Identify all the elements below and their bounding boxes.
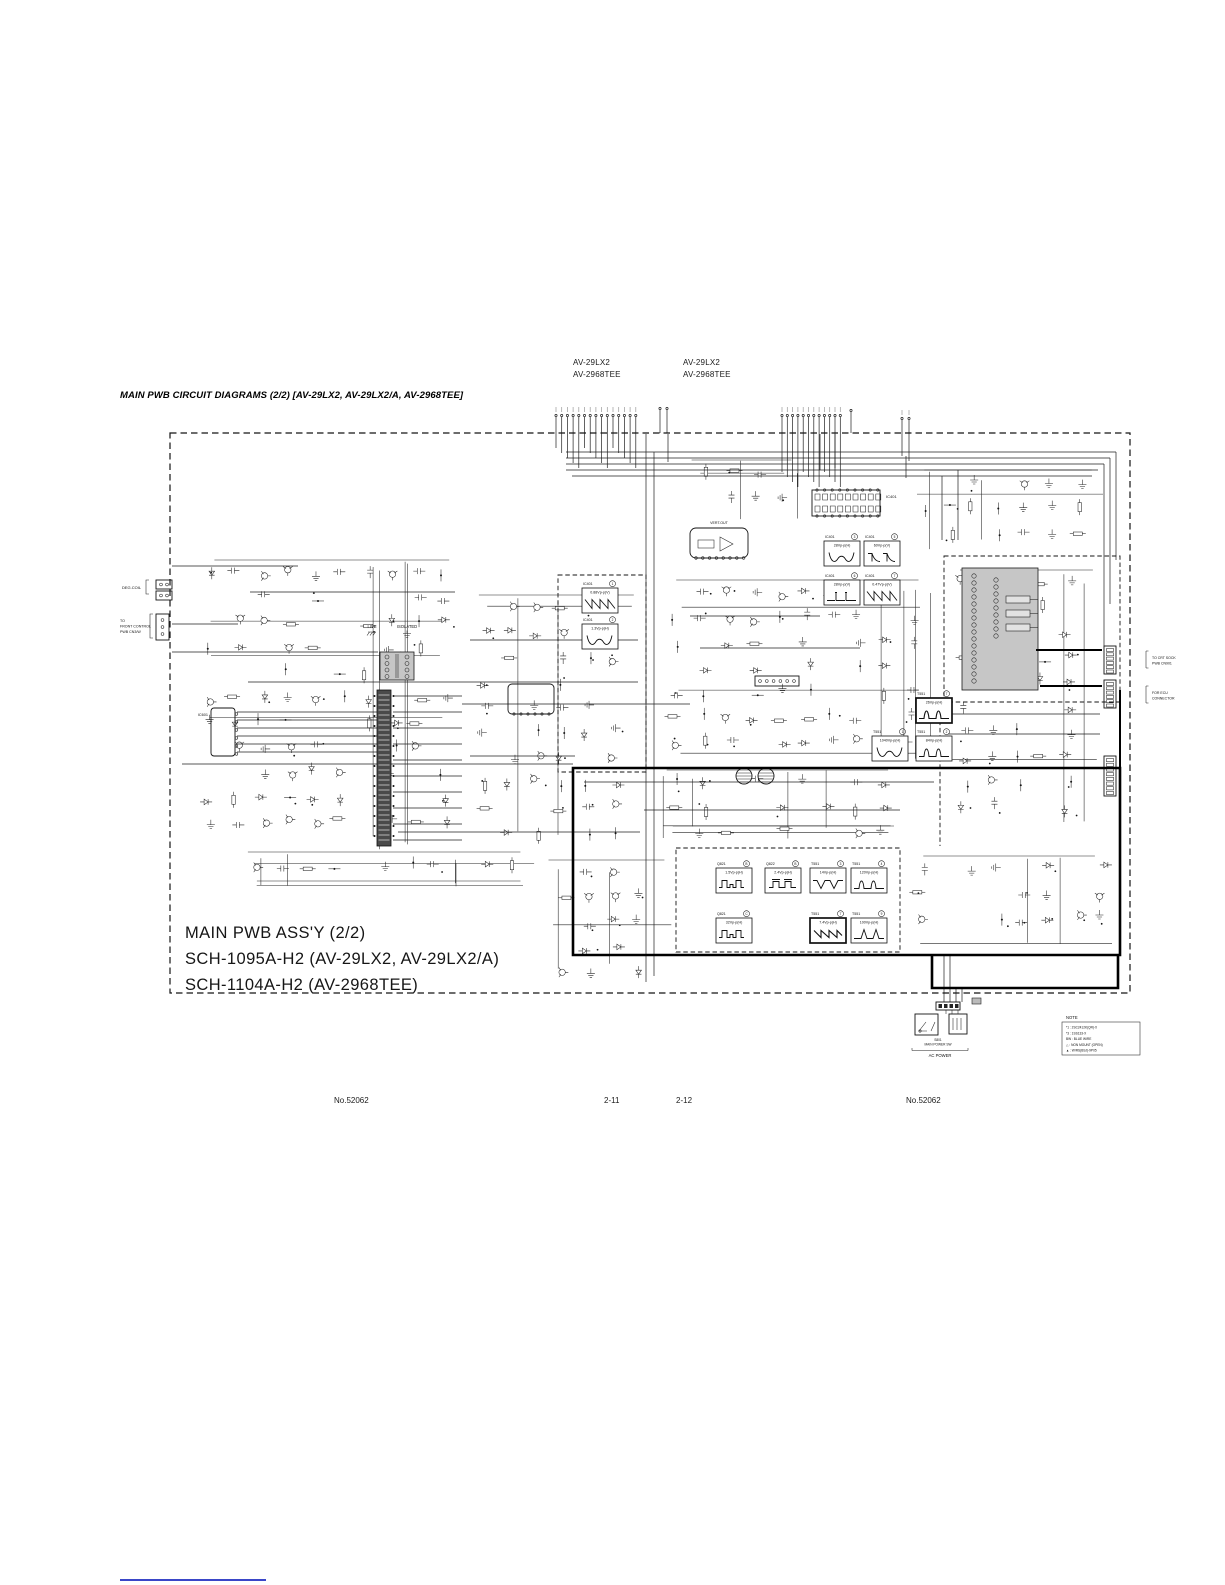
svg-text:1040Vp-p(H): 1040Vp-p(H) xyxy=(880,739,901,743)
waveform-ref-Q821-B: Q821B1.5Vp-p(H) xyxy=(716,861,752,893)
svg-text:T551: T551 xyxy=(917,730,925,734)
waveform-ref-Q821-C: Q821C32Vp-p(H) xyxy=(716,911,752,943)
isolated-section-label: ISOLATED xyxy=(397,624,417,629)
svg-text:3: 3 xyxy=(840,862,842,866)
front-control-connector xyxy=(156,614,169,640)
svg-text:9: 9 xyxy=(881,912,883,916)
svg-text:Q821: Q821 xyxy=(717,912,726,916)
schematic-outer-border xyxy=(170,433,1130,993)
svg-text:2: 2 xyxy=(612,618,614,622)
svg-text:1: 1 xyxy=(902,730,904,734)
main-power-switch xyxy=(915,1014,938,1035)
waveform-ref-T551-1: T55111040Vp-p(H) xyxy=(872,729,908,761)
svg-text:IC401: IC401 xyxy=(865,574,875,578)
note-line: △ : NON MOUNT (OPEN) xyxy=(1066,1043,1103,1047)
waveform-ref-Q822-B: Q822B2.4Vp-p(H) xyxy=(765,861,801,893)
wiring-texture xyxy=(200,460,1112,978)
svg-text:7: 7 xyxy=(840,912,842,916)
ecu-connector-label-2: CONNECTOR xyxy=(1152,697,1175,701)
ac-power-label: AC POWER xyxy=(929,1053,952,1058)
svg-text:T551: T551 xyxy=(811,912,819,916)
svg-text:0.88Vp-p(V): 0.88Vp-p(V) xyxy=(590,591,609,595)
ic601-package xyxy=(211,708,235,756)
waveform-ref-T551-9: T5519100Vp-p(H) xyxy=(851,911,887,943)
svg-text:7: 7 xyxy=(894,574,896,578)
bus-wires xyxy=(172,407,1116,1002)
waveform-references: IC40110.88Vp-p(V)IC40121.3Vp-p(H)IC40132… xyxy=(582,534,952,943)
svg-text:B: B xyxy=(745,862,747,866)
waveform-ref-T551-7: T55177.4Vp-p(H) xyxy=(810,911,846,943)
svg-text:60Vp-p(V): 60Vp-p(V) xyxy=(874,544,890,548)
note-line: *1 : 2SC2412K(QR)-X xyxy=(1066,1026,1098,1030)
page-number-right: 2-12 xyxy=(676,1096,692,1105)
svg-text:32Vp-p(H): 32Vp-p(H) xyxy=(726,921,743,925)
live-section-label: LIVE xyxy=(367,624,376,629)
deg-coil-label: DEG.COIL xyxy=(122,585,142,590)
section-borders xyxy=(170,433,1130,993)
waveform-ref-IC401-3: IC401328Vp-p(H) xyxy=(824,534,860,566)
svg-text:6: 6 xyxy=(854,574,856,578)
svg-text:T551: T551 xyxy=(917,692,925,696)
vert-out-label: VERT.OUT xyxy=(710,521,729,525)
waveform-ref-IC401-2: IC40121.3Vp-p(H) xyxy=(582,617,618,649)
svg-text:IC401: IC401 xyxy=(583,618,593,622)
front-control-label-2: FRONT CONTROL xyxy=(120,625,151,629)
svg-text:1: 1 xyxy=(612,582,614,586)
doc-number-left: No.52062 xyxy=(334,1096,369,1105)
svg-text:28Vp-p(H): 28Vp-p(H) xyxy=(834,544,851,548)
main-pwb-schematic: IC40110.88Vp-p(V)IC40121.3Vp-p(H)IC40132… xyxy=(0,0,1225,1585)
svg-text:Q821: Q821 xyxy=(717,862,726,866)
svg-text:T551: T551 xyxy=(873,730,881,734)
svg-text:B: B xyxy=(794,862,796,866)
note-title: NOTE xyxy=(1066,1015,1078,1020)
note-line: BW : BLUE WIRE xyxy=(1066,1037,1091,1041)
assembly-title-line: SCH-1104A-H2 (AV-2968TEE) xyxy=(185,972,499,998)
main-switch-name: MAIN POWER SW xyxy=(925,1043,952,1047)
svg-text:3: 3 xyxy=(854,535,856,539)
main-switch-ref: S801 xyxy=(934,1038,942,1042)
svg-text:84Vp-p(H): 84Vp-p(H) xyxy=(926,739,943,743)
svg-text:IC401: IC401 xyxy=(825,535,835,539)
assembly-title-line: MAIN PWB ASS'Y (2/2) xyxy=(185,920,499,946)
document-page: AV-29LX2 AV-2968TEE AV-29LX2 AV-2968TEE … xyxy=(0,0,1225,1585)
svg-text:0.47Vp-p(V): 0.47Vp-p(V) xyxy=(872,583,891,587)
svg-text:120Vp-p(H): 120Vp-p(H) xyxy=(860,871,879,875)
page-number-left: 2-11 xyxy=(604,1096,619,1105)
vertical-output-ic xyxy=(690,528,748,558)
waveform-ref-IC401-7: IC40170.47Vp-p(V) xyxy=(864,573,900,605)
board-connector-strip xyxy=(377,690,391,846)
link-underline[interactable] xyxy=(120,1579,266,1581)
front-control-label-3: PWB CN3/W xyxy=(120,630,141,634)
ic401-label: IC401 xyxy=(886,494,897,499)
svg-text:T551: T551 xyxy=(811,862,819,866)
svg-text:T551: T551 xyxy=(852,862,860,866)
svg-text:IC401: IC401 xyxy=(825,574,835,578)
svg-text:7.4Vp-p(H): 7.4Vp-p(H) xyxy=(819,921,837,925)
crt-sock-label-1: TO CRT SOCK xyxy=(1152,656,1176,660)
svg-text:100Vp-p(H): 100Vp-p(H) xyxy=(860,921,879,925)
front-control-label-1: TO xyxy=(120,619,125,623)
crt-sock-label-2: PWB CN901 xyxy=(1152,662,1172,666)
svg-text:IC401: IC401 xyxy=(583,582,593,586)
ecu-connector-label-1: FOR ECU xyxy=(1152,691,1168,695)
waveform-ref-T551-7: T551726Vp-p(H) xyxy=(916,691,952,723)
svg-text:T551: T551 xyxy=(852,912,860,916)
waveform-ref-IC401-6: IC401628Vp-p(V) xyxy=(824,573,860,605)
svg-text:4: 4 xyxy=(881,862,883,866)
ic601-label: IC601 xyxy=(198,713,208,717)
svg-text:26Vp-p(H): 26Vp-p(H) xyxy=(926,701,943,705)
svg-text:C: C xyxy=(745,912,748,916)
svg-text:14Vp-p(H): 14Vp-p(H) xyxy=(820,871,837,875)
svg-text:1.3Vp-p(H): 1.3Vp-p(H) xyxy=(591,627,609,631)
svg-text:2.4Vp-p(H): 2.4Vp-p(H) xyxy=(774,871,792,875)
doc-number-right: No.52062 xyxy=(906,1096,941,1105)
svg-text:5: 5 xyxy=(894,535,896,539)
waveform-ref-T551-3: T551314Vp-p(H) xyxy=(810,861,846,893)
svg-text:7: 7 xyxy=(946,692,948,696)
svg-text:IC401: IC401 xyxy=(865,535,875,539)
note-line: ▲ : W/RS(BSJ)-9P05 xyxy=(1066,1049,1097,1053)
waveform-ref-IC401-5: IC401560Vp-p(V) xyxy=(864,534,900,566)
svg-text:2: 2 xyxy=(946,730,948,734)
svg-text:1.5Vp-p(H): 1.5Vp-p(H) xyxy=(725,871,743,875)
waveform-ref-IC401-1: IC40110.88Vp-p(V) xyxy=(582,581,618,613)
assembly-title-block: MAIN PWB ASS'Y (2/2) SCH-1095A-H2 (AV-29… xyxy=(185,920,499,998)
waveform-ref-T551-4: T5514120Vp-p(H) xyxy=(851,861,887,893)
svg-text:28Vp-p(V): 28Vp-p(V) xyxy=(834,583,850,587)
note-line: *3 : 1SS133-X xyxy=(1066,1031,1087,1035)
waveform-ref-T551-2: T551284Vp-p(H) xyxy=(916,729,952,761)
assembly-title-line: SCH-1095A-H2 (AV-29LX2, AV-29LX2/A) xyxy=(185,946,499,972)
svg-text:Q822: Q822 xyxy=(766,862,775,866)
